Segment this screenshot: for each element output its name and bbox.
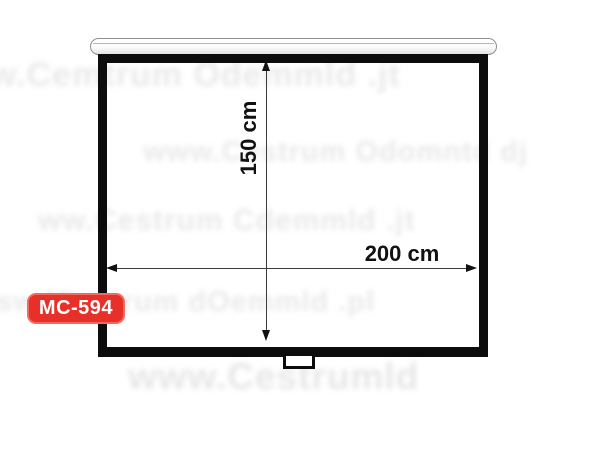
product-dimension-diagram: w.Cemtrum Odemmld .jt www.Cestrum Odomnt…	[0, 0, 600, 466]
width-dimension-label: 200 cm	[365, 241, 440, 267]
arrow-up-icon	[262, 60, 270, 71]
model-badge: MC-594	[27, 293, 125, 324]
height-dimension-line	[266, 70, 267, 332]
arrow-right-icon	[466, 264, 477, 272]
roller-casing	[90, 38, 497, 55]
roller-casing-highlight	[93, 43, 494, 44]
pull-handle	[283, 356, 315, 369]
arrow-left-icon	[106, 264, 117, 272]
screen-frame	[98, 54, 488, 357]
arrow-down-icon	[262, 330, 270, 341]
height-dimension-label: 150 cm	[236, 101, 262, 176]
watermark-text: www.Cestrumld	[128, 356, 419, 398]
width-dimension-line	[116, 268, 468, 269]
